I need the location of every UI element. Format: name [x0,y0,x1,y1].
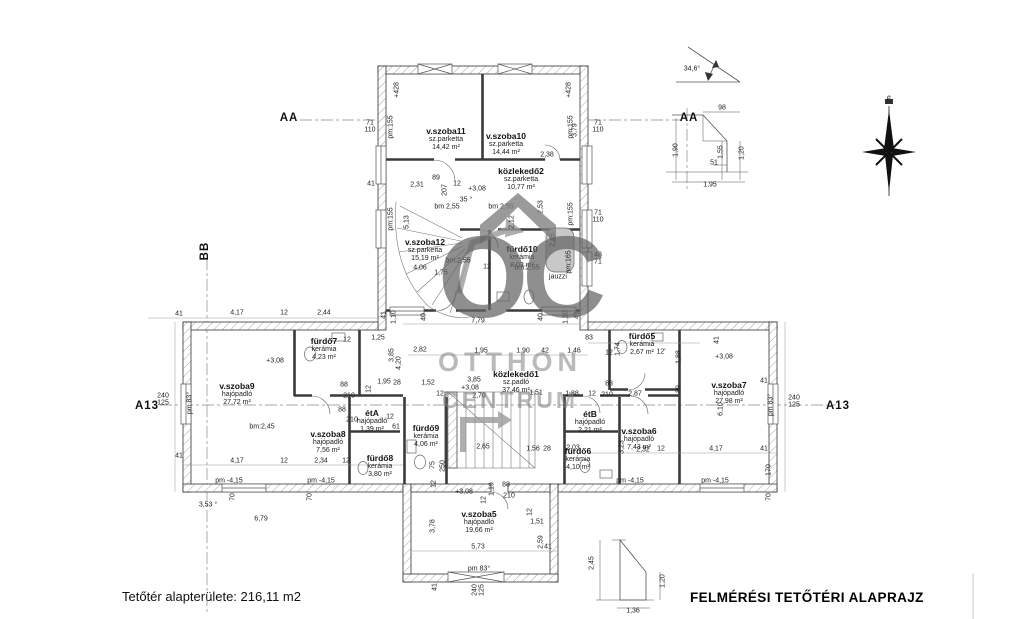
dimension-label: pm -4,15 [307,477,335,484]
dimension-label: 41 [573,311,580,319]
dimension-label: 2,45 [549,233,556,247]
dimension-label: 70 [306,493,313,501]
dimension-label: 41 [175,452,183,459]
dimension-label: 1,36 [626,607,640,614]
dimension-label: pm:155 [567,202,574,225]
dimension-label: 41 [544,543,552,550]
dimension-label: pm -4,15 [616,477,644,484]
dimension-label: 12 [526,508,533,516]
dimension-label: 1,10 [562,310,569,324]
dimension-label: 1,90 [516,347,530,354]
dimension-label: pm 83° [468,565,490,572]
dimension-label: 4,20 [395,356,402,370]
dimension-label: 41 [713,336,720,344]
room-label-v-szoba9: v.szoba9hajópadló27,72 m² [219,382,254,406]
dimension-label: 6,79 [254,515,268,522]
dimension-label: 207 [441,184,448,196]
dimension-label: 3,79 [571,123,578,137]
dimension-label: 12 [343,336,351,343]
dimension-label: 12 [657,445,665,452]
dimension-label: bm:2,55 [445,257,470,264]
dimension-label: 41 [175,310,183,317]
dimension-label: 4,17 [230,457,244,464]
dimension-label: 12 [280,457,288,464]
dimension-label: 12 [280,309,288,316]
dimension-label: 71 110 [364,120,375,135]
dimension-label: 2,34 [314,457,328,464]
dimension-label: 2,65 [476,443,490,450]
dimension-label: 2,44 [317,309,331,316]
dimension-label: 88 [338,406,346,413]
dimension-label: 1,20 [659,574,666,588]
dimension-label: 3,78 [429,519,436,533]
dimension-label: 210 [346,416,358,423]
dimension-label: 3,85 [467,376,481,383]
room-label-fürdő9: fürdő9kerámia4,06 m² [413,424,439,448]
section-marker-AA: AA [280,112,299,124]
dimension-label: 5,73 [471,543,485,550]
room-label-fürdő8: fürdő8kerámia3,80 m² [367,454,393,478]
dimension-label: 1,74 [614,342,621,356]
dimension-label: 1,25 [371,334,385,341]
dimension-label: 2,82 [413,346,427,353]
section-marker-AA: AA [680,112,699,124]
dimension-label: 1,10 [390,310,397,324]
dimension-label: 1,19 [488,482,495,496]
room-label-étB: étBhajópadló2,21 m² [575,410,605,434]
dimension-label: 28 [543,445,551,452]
room-label-közlekedő2: közlekedő2sz.parketta10,77 m² [498,167,544,191]
dimension-label: 75 [429,461,436,469]
dimension-label: 1,56 [526,445,540,452]
dimension-label: +3,08 [455,488,473,495]
dimension-label: pm 83° [186,392,193,414]
dimension-label: 12 [483,263,491,270]
dimension-label: 2,38 [540,151,554,158]
dimension-label: 2,53 [537,200,544,214]
dimension-label: 4,06 [413,264,427,271]
dimension-label: 12 [365,385,372,393]
dimension-label: 240 125 [472,584,487,596]
dimension-label: 12 [342,457,350,464]
dimension-label: 28 [393,379,401,386]
room-label-v-szoba12: v.szoba12sz.parketta15,19 m² [405,238,445,262]
dimension-label: 1,51 [530,518,544,525]
dimension-label: 7,79 [471,317,485,324]
dimension-label: 210 [601,391,613,398]
dimension-label: pm:155 [387,207,394,230]
room-label-étA: étAhajópadló1,39 m² [357,409,387,433]
dimension-label: 98 [718,104,726,111]
dimension-label: +3,08 [468,185,486,192]
dimension-label: +428 [565,82,572,98]
dimension-label: 12 [430,480,437,488]
dimension-label: 210 [343,392,355,399]
dimension-label: É [887,96,892,103]
dimension-label: 1,95 [474,347,488,354]
dimension-label: 51 [710,159,718,166]
dimension-label: +3,08 [715,353,733,360]
dimension-label: 40 [537,313,544,321]
dimension-label: 88 [340,381,348,388]
dimension-label: 89 [675,385,682,393]
dimension-label: 41 [367,180,375,187]
dimension-label: 6,10 [717,402,724,416]
dimension-label: 71 110 [592,120,603,135]
dimension-label: 12 [453,180,461,187]
dimension-label: 240 125 [788,395,800,410]
dimension-label: +428 [393,82,400,98]
dimension-label: bm:2,55 [514,264,539,271]
dimension-label: 1,88 [565,390,579,397]
section-marker-A13: A13 [826,400,850,412]
room-label-v-szoba10: v.szoba10sz.parketta14,44 m² [486,132,526,156]
room-label-fürdő7: fürdő7kerámia4,23 m² [311,337,337,361]
dimension-label: 12 [605,349,613,356]
dimension-label: 42 [541,347,549,354]
dimension-label: 2,12 [508,215,515,229]
dimension-label: 2,03 [566,444,580,451]
dimension-label: pm 83° [767,394,774,416]
dimension-label: 40 [420,313,427,321]
dimension-label: 89 [432,174,440,181]
dimension-label: +3,08 [266,357,284,364]
room-label-fürdő5: fürdő5kerámia2,67 m² [629,332,655,356]
dimension-label: +3,08 [461,384,479,391]
section-marker-A13: A13 [135,400,159,412]
dimension-label: 1,95 [703,181,717,188]
dimension-label: 1,52 [421,379,435,386]
section-marker-BB: BB [199,242,211,261]
dimension-label: 41 [760,377,768,384]
room-label-v-szoba11: v.szoba11sz.parketta14,42 m² [426,127,466,151]
dimension-label: 12 [386,413,394,420]
dimension-label: 1,88 [675,350,682,364]
dimension-label: 1,51 [529,389,543,396]
dimension-label: bm:2,45 [249,423,274,430]
dimension-label: 48 71 [594,252,602,267]
dimension-label: 12 [436,390,444,397]
dimension-label: 1,20 [738,146,745,160]
dimension-label: 41 [760,445,768,452]
dimension-label: 3,53 ° [199,501,217,508]
dimension-label: 1,90 [672,143,679,157]
dimension-label: 83 [585,334,593,341]
room-label-v-szoba5: v.szoba5hajópadló19,66 m² [461,510,496,534]
dimension-label: 41 [380,311,387,319]
dimension-label: 88 [502,481,510,488]
dimension-label: 61 [392,423,400,430]
dimension-label: 2,31 [410,181,424,188]
dimension-label: pm:165 [565,250,572,273]
dimension-label: 70 [765,493,772,501]
plan-labels: v.szoba11sz.parketta14,42 m²v.szoba10sz.… [0,0,1024,619]
dimension-label: 2,87 [628,390,642,397]
dimension-label: 35 ° [460,196,473,203]
dimension-label: 70 [229,493,236,501]
dimension-label: 2,45 [588,556,595,570]
dimension-label: 4,17 [709,445,723,452]
room-label-v-szoba8: v.szoba8hajópadló7,56 m² [310,430,345,454]
dimension-label: jauzzi [549,273,567,280]
dimension-label: 3,23 [618,440,625,454]
dimension-label: 34,6° [684,65,700,72]
dimension-label: 1,95 [377,378,391,385]
dimension-label: 2,70 [472,392,486,399]
dimension-label: 12 [480,496,487,504]
dimension-label: 12 [588,390,596,397]
dimension-label: 71 110 [592,210,603,225]
dimension-label: 12' [656,348,665,355]
dimension-label: 250 [439,460,446,472]
dimension-label: 1,75 [434,269,448,276]
dimension-label: 210 [503,492,515,499]
dimension-label: pm -4,15 [215,477,243,484]
dimension-label: 5,13 [403,215,410,229]
dimension-label: pm:155 [387,115,394,138]
dimension-label: bm 2,55 [488,203,513,210]
dimension-label: bm 2,55 [434,203,459,210]
dimension-label: 41 [431,583,438,591]
dimension-label: 170 [765,464,772,476]
dimension-label: pm -4,15 [701,477,729,484]
dimension-label: 1,55 [717,145,724,159]
dimension-label: 88 [605,380,613,387]
dimension-label: 4,17 [230,309,244,316]
dimension-label: 2,32 [636,446,650,453]
dimension-label: 1,46 [567,347,581,354]
